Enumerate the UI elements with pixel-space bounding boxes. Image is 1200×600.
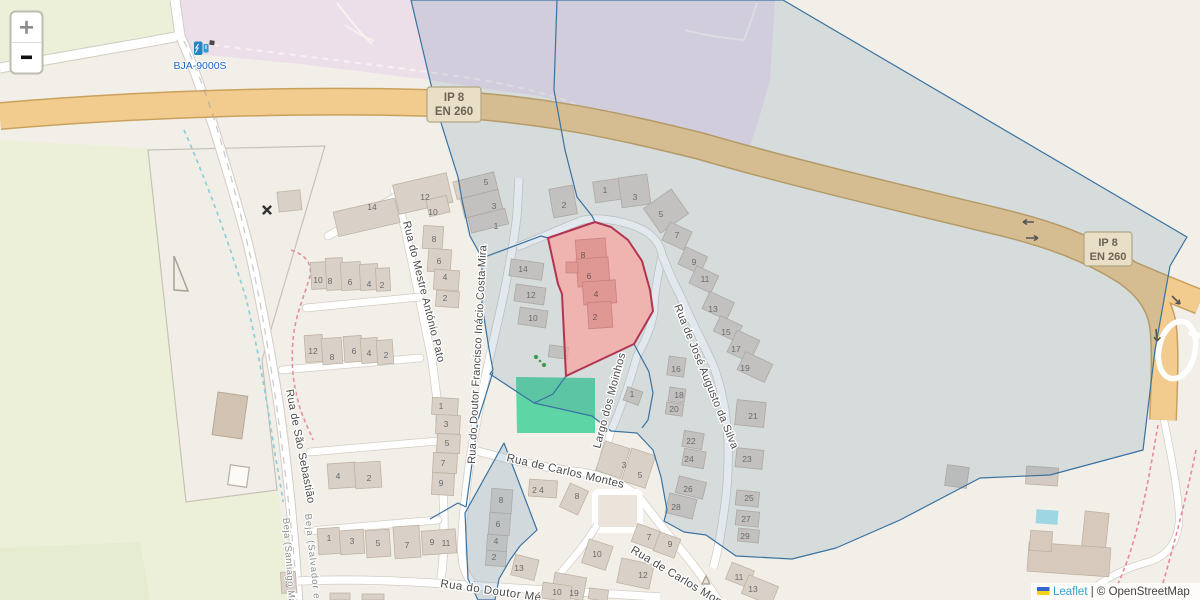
svg-text:11: 11 (442, 538, 451, 548)
svg-text:2 4: 2 4 (532, 485, 544, 495)
svg-text:2: 2 (384, 350, 389, 360)
svg-text:IP 8: IP 8 (444, 92, 465, 104)
svg-text:9: 9 (692, 257, 697, 267)
svg-text:6: 6 (348, 277, 353, 287)
svg-text:14: 14 (367, 202, 377, 212)
svg-text:13: 13 (748, 584, 758, 594)
svg-text:4: 4 (494, 536, 499, 546)
svg-text:1: 1 (603, 185, 608, 195)
svg-text:EN 260: EN 260 (1090, 251, 1127, 263)
svg-text:4: 4 (367, 348, 372, 358)
svg-text:BJA-9000S: BJA-9000S (173, 60, 226, 72)
svg-text:6: 6 (437, 256, 442, 266)
svg-text:2: 2 (562, 200, 567, 210)
svg-text:19: 19 (740, 363, 750, 373)
svg-text:26: 26 (683, 484, 693, 494)
svg-text:1: 1 (630, 389, 635, 399)
svg-text:10: 10 (428, 207, 438, 217)
svg-text:8: 8 (499, 495, 504, 505)
svg-text:16: 16 (671, 364, 681, 374)
svg-text:1: 1 (439, 401, 444, 411)
svg-text:15: 15 (721, 327, 731, 337)
svg-text:3: 3 (350, 536, 355, 546)
svg-text:9: 9 (439, 478, 444, 488)
svg-text:8: 8 (330, 352, 335, 362)
svg-text:8: 8 (581, 250, 586, 260)
svg-text:12: 12 (638, 570, 648, 580)
svg-text:18: 18 (674, 390, 684, 400)
svg-text:5: 5 (445, 438, 450, 448)
svg-text:14: 14 (518, 264, 528, 274)
svg-text:2: 2 (443, 293, 448, 303)
svg-text:28: 28 (671, 502, 681, 512)
svg-text:23: 23 (742, 454, 752, 464)
svg-text:5: 5 (484, 177, 489, 187)
svg-text:8: 8 (328, 276, 333, 286)
svg-text:29: 29 (740, 531, 750, 541)
svg-text:4: 4 (367, 279, 372, 289)
svg-text:5: 5 (659, 209, 664, 219)
svg-text:7: 7 (405, 540, 410, 550)
svg-text:10: 10 (552, 587, 562, 597)
svg-text:10: 10 (313, 275, 323, 285)
svg-text:2: 2 (492, 552, 497, 562)
svg-text:24: 24 (684, 454, 694, 464)
svg-text:4: 4 (443, 272, 448, 282)
svg-text:3: 3 (444, 419, 449, 429)
svg-text:IP 8: IP 8 (1098, 237, 1117, 249)
svg-text:3: 3 (622, 460, 627, 470)
svg-text:19: 19 (569, 588, 579, 598)
svg-text:6: 6 (587, 271, 592, 281)
svg-text:2: 2 (380, 280, 385, 290)
svg-text:4: 4 (594, 289, 599, 299)
svg-text:11: 11 (735, 572, 744, 582)
svg-text:7: 7 (675, 230, 680, 240)
svg-text:13: 13 (708, 304, 718, 314)
svg-text:3: 3 (633, 192, 638, 202)
svg-text:5: 5 (376, 538, 381, 548)
svg-text:Leaflet | © OpenStreetMap: Leaflet | © OpenStreetMap (1053, 586, 1190, 598)
svg-text:27: 27 (741, 514, 751, 524)
svg-text:21: 21 (748, 411, 758, 421)
svg-text:6: 6 (352, 346, 357, 356)
svg-text:9: 9 (668, 539, 673, 549)
svg-text:20: 20 (669, 404, 679, 414)
svg-text:2: 2 (367, 473, 372, 483)
svg-text:8: 8 (575, 491, 580, 501)
svg-text:2: 2 (593, 312, 598, 322)
svg-text:10: 10 (592, 549, 602, 559)
svg-text:EN 260: EN 260 (435, 106, 473, 118)
svg-text:6: 6 (496, 519, 501, 529)
svg-text:5: 5 (638, 470, 643, 480)
svg-text:1: 1 (494, 221, 499, 231)
svg-text:7: 7 (441, 458, 446, 468)
svg-text:12: 12 (308, 346, 318, 356)
svg-text:12: 12 (420, 192, 430, 202)
svg-text:10: 10 (528, 313, 538, 323)
svg-text:3: 3 (492, 201, 497, 211)
svg-text:17: 17 (731, 344, 741, 354)
svg-text:11: 11 (701, 274, 710, 284)
svg-text:7: 7 (647, 532, 652, 542)
svg-text:22: 22 (686, 436, 696, 446)
svg-text:13: 13 (514, 563, 524, 573)
svg-text:25: 25 (744, 493, 754, 503)
svg-text:12: 12 (526, 290, 536, 300)
svg-text:9: 9 (430, 537, 435, 547)
svg-text:1: 1 (327, 533, 332, 543)
svg-text:8: 8 (432, 234, 437, 244)
svg-text:4: 4 (336, 471, 341, 481)
